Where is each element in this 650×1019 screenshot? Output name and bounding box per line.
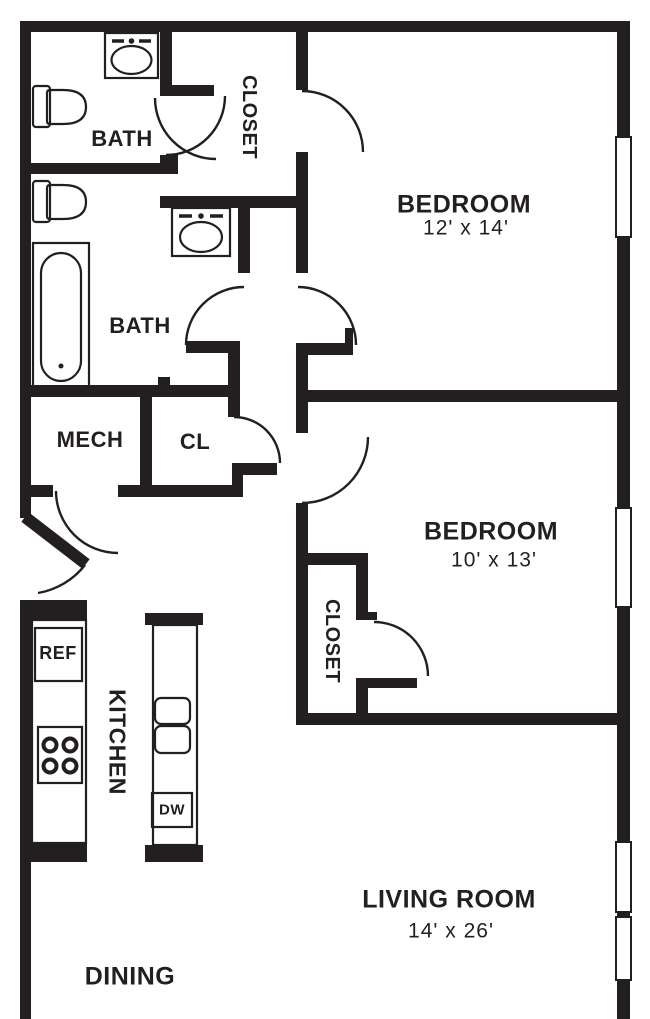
floor-plan-drawing — [0, 0, 650, 1019]
wall-closet2-left — [296, 565, 308, 725]
wall-kitchen-cap-br — [145, 845, 203, 862]
wall-bath1-door-jamb — [172, 85, 214, 96]
window-bedroom2 — [616, 508, 631, 607]
wall-closet2-top — [296, 553, 368, 565]
wall-closet2-jut — [356, 612, 377, 620]
appliance-label-dishwasher: DW — [159, 803, 185, 818]
floor-plan: BATH CLOSET BEDROOM 12' x 14' BATH MECH … — [0, 0, 650, 1019]
bath2-toilet-icon — [33, 181, 86, 222]
wall-doorstop-stub — [345, 328, 353, 343]
room-label-closet-bedroom2: CLOSET — [322, 599, 342, 683]
wall-hall-spine — [228, 341, 240, 417]
room-dimensions-bedroom2: 10' x 13' — [451, 550, 537, 571]
wall-kitchen-cap-tr — [145, 613, 203, 625]
wall-bath2-right — [238, 208, 250, 273]
wall-right-2 — [617, 237, 630, 508]
door-arc-closet1 — [155, 98, 216, 159]
wall-mech-cl-divider — [140, 397, 152, 497]
wall-bedroom2-bottom — [296, 713, 617, 725]
room-label-bedroom1: BEDROOM — [397, 193, 531, 218]
kitchen-sink-icon — [155, 698, 190, 753]
room-label-kitchen: KITCHEN — [106, 689, 129, 795]
entry-door-leaf — [25, 517, 86, 564]
room-label-closet-upper: CLOSET — [239, 75, 259, 159]
wall-kitchen-cap-tl — [20, 600, 87, 620]
room-label-bath-upper: BATH — [91, 128, 152, 150]
wall-closet2-door-jamb — [356, 678, 417, 688]
wall-notch — [158, 377, 170, 385]
room-label-cl: CL — [180, 431, 210, 453]
wall-right-1 — [617, 21, 630, 137]
wall-closet2-right-upper — [356, 565, 368, 612]
window-bedroom1 — [616, 137, 631, 237]
wall-mech-bottom-right — [118, 485, 243, 497]
appliance-label-refrigerator: REF — [39, 644, 77, 662]
room-label-dining: DINING — [85, 965, 176, 990]
wall-bedroom2-left-upper — [296, 343, 308, 433]
wall-top — [20, 21, 630, 32]
stove-icon — [38, 727, 82, 783]
room-label-mech: MECH — [57, 429, 124, 451]
room-dimensions-bedroom1: 12' x 14' — [423, 218, 509, 239]
wall-left-lower — [20, 600, 31, 1019]
wall-bath1-bottom — [20, 163, 172, 174]
room-label-bath-lower: BATH — [109, 315, 170, 337]
bath2-sink-icon — [172, 208, 230, 256]
door-arc-entry — [38, 565, 85, 593]
window-living-1 — [616, 842, 631, 912]
wall-bath1-right-upper — [160, 32, 172, 96]
bath1-toilet-icon — [33, 86, 86, 127]
door-arc-cl — [234, 417, 280, 463]
bathtub-icon — [33, 243, 89, 390]
wall-kitchen-cap-bl — [20, 843, 87, 862]
door-arc-bedroom1 — [302, 91, 363, 152]
door-arc-bedroom2 — [302, 437, 368, 503]
wall-closet1-right-upper — [296, 32, 308, 90]
room-label-living-room: LIVING ROOM — [362, 888, 536, 913]
wall-closet1-right-lower — [296, 152, 308, 273]
bath1-sink-icon — [105, 33, 158, 78]
wall-right-3 — [617, 607, 630, 842]
wall-closet1-bottom — [160, 196, 308, 208]
door-arc-hall-left — [186, 287, 244, 345]
wall-mech-bottom-left — [20, 485, 53, 497]
door-arc-closet2 — [374, 622, 428, 676]
window-living-2 — [616, 917, 631, 980]
wall-left-upper — [20, 21, 31, 518]
wall-cl-door-jamb — [232, 463, 277, 475]
room-dimensions-living-room: 14' x 26' — [408, 921, 494, 942]
room-label-bedroom2: BEDROOM — [424, 520, 558, 545]
door-arc-bath1 — [166, 96, 225, 155]
wall-right-4 — [617, 980, 630, 1019]
wall-bedroom-divider — [296, 390, 617, 402]
